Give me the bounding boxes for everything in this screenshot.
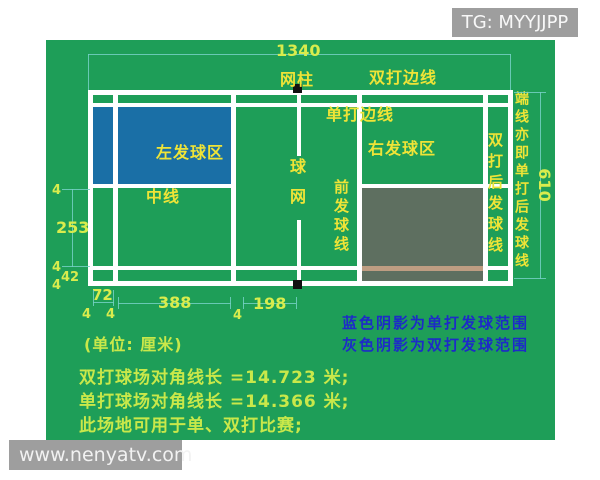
- dim-tick-1340-left: [88, 54, 89, 90]
- dim-tick-1340-right: [510, 54, 511, 90]
- doubles-sideline-label: 双打边线: [369, 70, 437, 86]
- net-post-bottom: [293, 280, 302, 289]
- dim-tick-198-right: [296, 297, 297, 309]
- dim-line-width-short-service: 4: [233, 309, 242, 322]
- dim-line-width-singles: 4: [52, 261, 61, 274]
- dim-line-width-doubles-long: 4: [106, 308, 115, 321]
- dim-tick-388-right: [230, 297, 231, 309]
- note-usage: 此场地可用于单、双打比赛;: [79, 411, 303, 436]
- net-post-label: 网柱: [267, 72, 327, 88]
- dim-line-width-centerline: 4: [52, 184, 61, 197]
- dim-line-72: [93, 302, 114, 303]
- dim-service-area-length: 388: [158, 295, 191, 311]
- dim-back-service-gap: 72: [92, 288, 113, 303]
- dim-tick-72-left: [93, 290, 94, 306]
- dim-line-width-back-boundary: 4: [82, 308, 91, 321]
- note-doubles-diagonal: 双打球场对角线长 =14.723 米;: [79, 363, 349, 388]
- doubles-long-service-line-left: [113, 95, 118, 281]
- dim-tick-72-right: [113, 290, 114, 306]
- note-gray-shade: 灰色阴影为双打发球范围: [342, 334, 529, 355]
- net-label: 球网: [287, 156, 305, 220]
- dim-tick-198-left: [243, 297, 244, 309]
- dim-line-width-doubles: 4: [52, 279, 61, 292]
- telegram-watermark: TG: MYYJJPP: [452, 8, 578, 37]
- front-service-line-label: 前发球线: [333, 179, 348, 255]
- dim-tick-253-top: [62, 189, 90, 190]
- right-service-area-label: 右发球区: [368, 141, 436, 157]
- dim-service-area-width: 253: [56, 220, 89, 236]
- dim-sideline-gap: 42: [61, 271, 79, 284]
- end-line-label: 端线亦即单打后发球线: [514, 91, 528, 271]
- dim-tick-253-bottom: [62, 266, 90, 267]
- center-line-label: 中线: [146, 189, 180, 205]
- note-blue-shade: 蓝色阴影为单打发球范围: [342, 312, 529, 333]
- singles-sideline-label: 单打边线: [326, 107, 394, 123]
- dim-tick-388-left: [118, 297, 119, 309]
- website-watermark: www.nenyatv.com: [9, 440, 182, 470]
- dim-total-length: 1340: [276, 43, 320, 59]
- dim-total-width: 610: [536, 167, 552, 203]
- left-service-area-label: 左发球区: [156, 145, 224, 161]
- badminton-court-diagram: 1340 网柱 双打边线 单打边线 左发球区 右发球区 中线 球网 前发球线 双…: [46, 40, 555, 440]
- dim-short-service-distance: 198: [253, 296, 286, 312]
- note-singles-diagonal: 单打球场对角线长 =14.366 米;: [79, 387, 349, 412]
- short-service-line-left: [231, 95, 236, 281]
- dim-tick-610-top: [514, 92, 546, 93]
- note-unit: (单位: 厘米): [84, 331, 183, 355]
- singles-sideline-over-grey: [362, 266, 483, 271]
- dim-tick-610-bottom: [514, 278, 546, 279]
- doubles-back-service-line-label: 双打后发球线: [487, 132, 502, 258]
